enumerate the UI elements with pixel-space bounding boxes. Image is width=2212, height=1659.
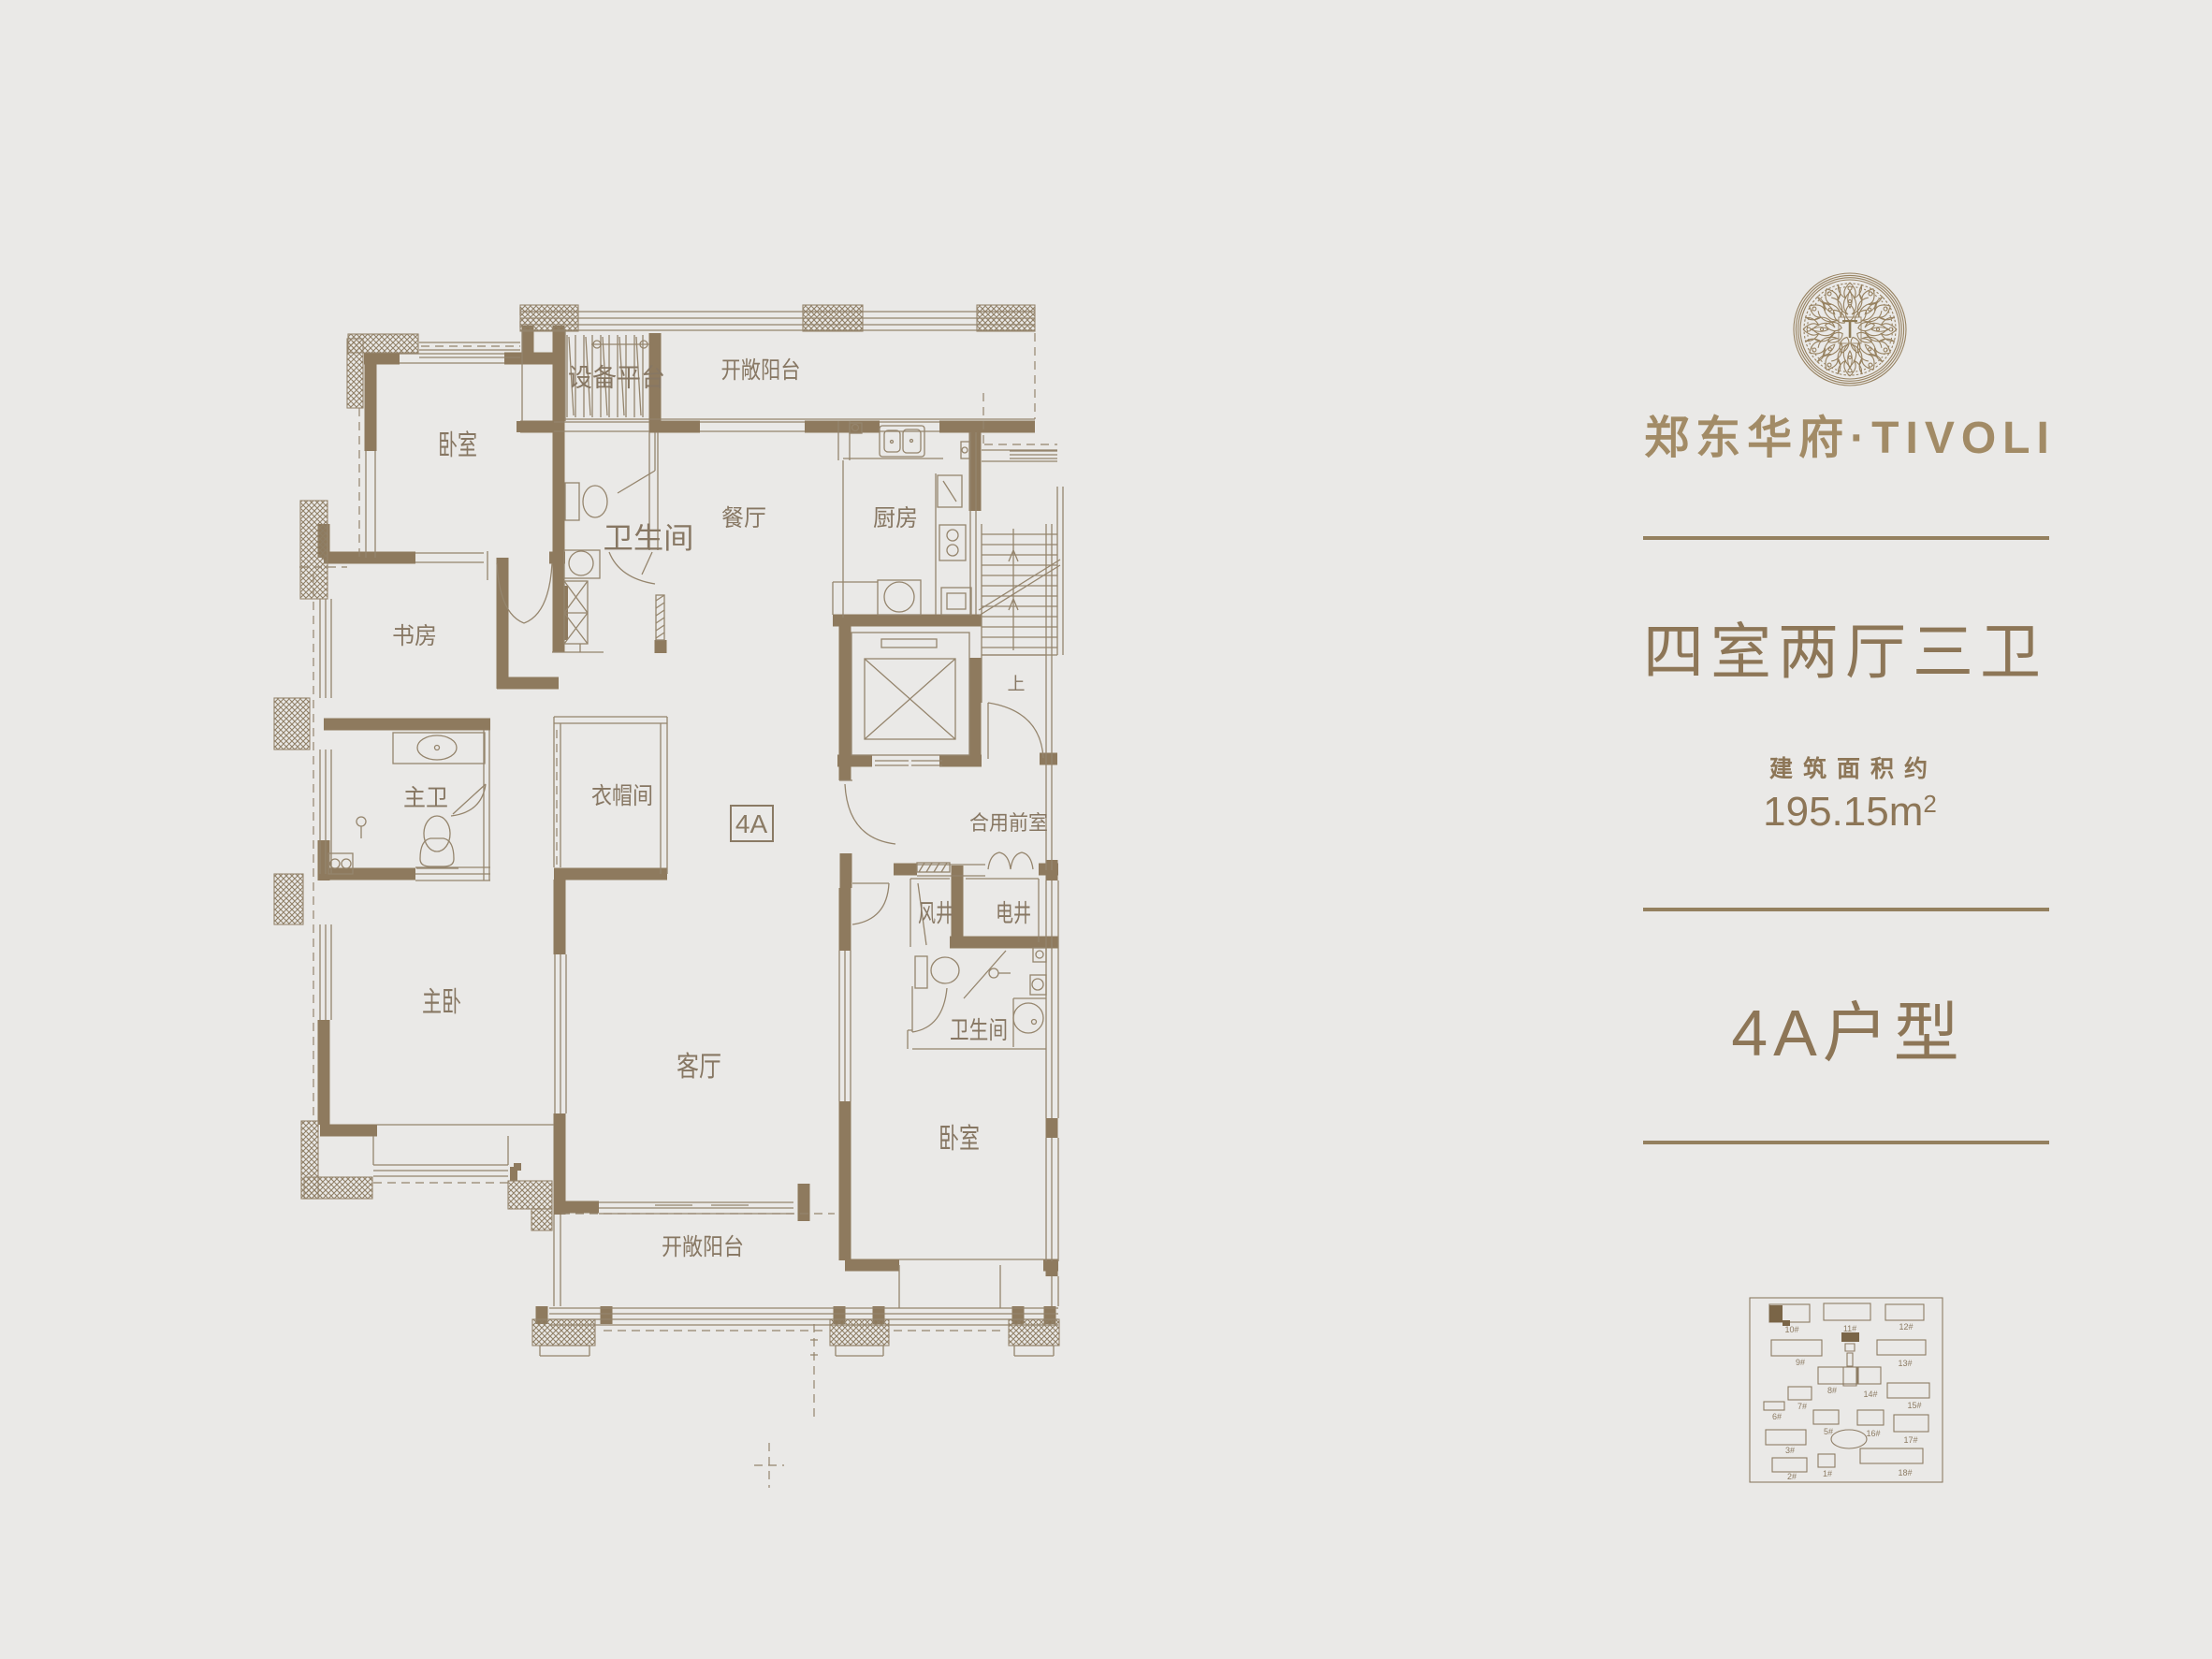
svg-text:主卧: 主卧	[422, 987, 461, 1018]
svg-text:书房: 书房	[392, 623, 437, 649]
svg-text:厨房: 厨房	[873, 505, 918, 531]
svg-text:11#: 11#	[1843, 1324, 1856, 1333]
svg-text:卧室: 卧室	[939, 1124, 980, 1155]
svg-text:开敞阳台: 开敞阳台	[721, 357, 801, 384]
svg-text:衣帽间: 衣帽间	[591, 783, 653, 809]
svg-text:3#: 3#	[1785, 1446, 1795, 1455]
svg-text:4A: 4A	[735, 809, 768, 838]
svg-text:13#: 13#	[1898, 1359, 1912, 1368]
svg-text:主卫: 主卫	[403, 785, 448, 811]
svg-text:客厅: 客厅	[677, 1052, 721, 1083]
svg-text:设备平台: 设备平台	[568, 364, 665, 392]
svg-text:195.15m2: 195.15m2	[1763, 789, 1937, 835]
svg-text:5#: 5#	[1824, 1427, 1833, 1436]
svg-text:电井: 电井	[996, 899, 1031, 927]
svg-text:4A户型: 4A户型	[1731, 997, 1965, 1070]
svg-text:17#: 17#	[1903, 1435, 1917, 1445]
svg-text:开敞阳台: 开敞阳台	[662, 1234, 744, 1260]
svg-text:9#: 9#	[1796, 1358, 1805, 1367]
svg-text:T: T	[1841, 314, 1857, 343]
svg-text:12#: 12#	[1899, 1322, 1913, 1332]
svg-text:上: 上	[1007, 674, 1025, 694]
svg-text:建筑面积约: 建筑面积约	[1769, 755, 1938, 782]
svg-text:卫生间: 卫生间	[604, 522, 694, 555]
svg-text:8#: 8#	[1827, 1386, 1837, 1395]
svg-text:风井: 风井	[918, 899, 953, 927]
svg-text:1#: 1#	[1823, 1469, 1832, 1478]
svg-text:卫生间: 卫生间	[950, 1016, 1008, 1044]
svg-text:郑东华府·TIVOLI: 郑东华府·TIVOLI	[1644, 414, 2056, 463]
svg-text:16#: 16#	[1866, 1429, 1880, 1438]
svg-text:合用前室: 合用前室	[969, 811, 1048, 835]
svg-text:15#: 15#	[1907, 1401, 1921, 1410]
svg-text:6#: 6#	[1772, 1412, 1782, 1421]
svg-text:7#: 7#	[1797, 1402, 1807, 1411]
svg-text:卧室: 卧室	[438, 430, 477, 461]
svg-text:四室两厅三卫: 四室两厅三卫	[1643, 618, 2047, 686]
svg-text:餐厅: 餐厅	[721, 505, 766, 531]
svg-text:14#: 14#	[1863, 1390, 1877, 1399]
svg-text:10#: 10#	[1784, 1325, 1798, 1334]
svg-text:18#: 18#	[1898, 1468, 1912, 1477]
svg-text:2#: 2#	[1787, 1472, 1797, 1481]
